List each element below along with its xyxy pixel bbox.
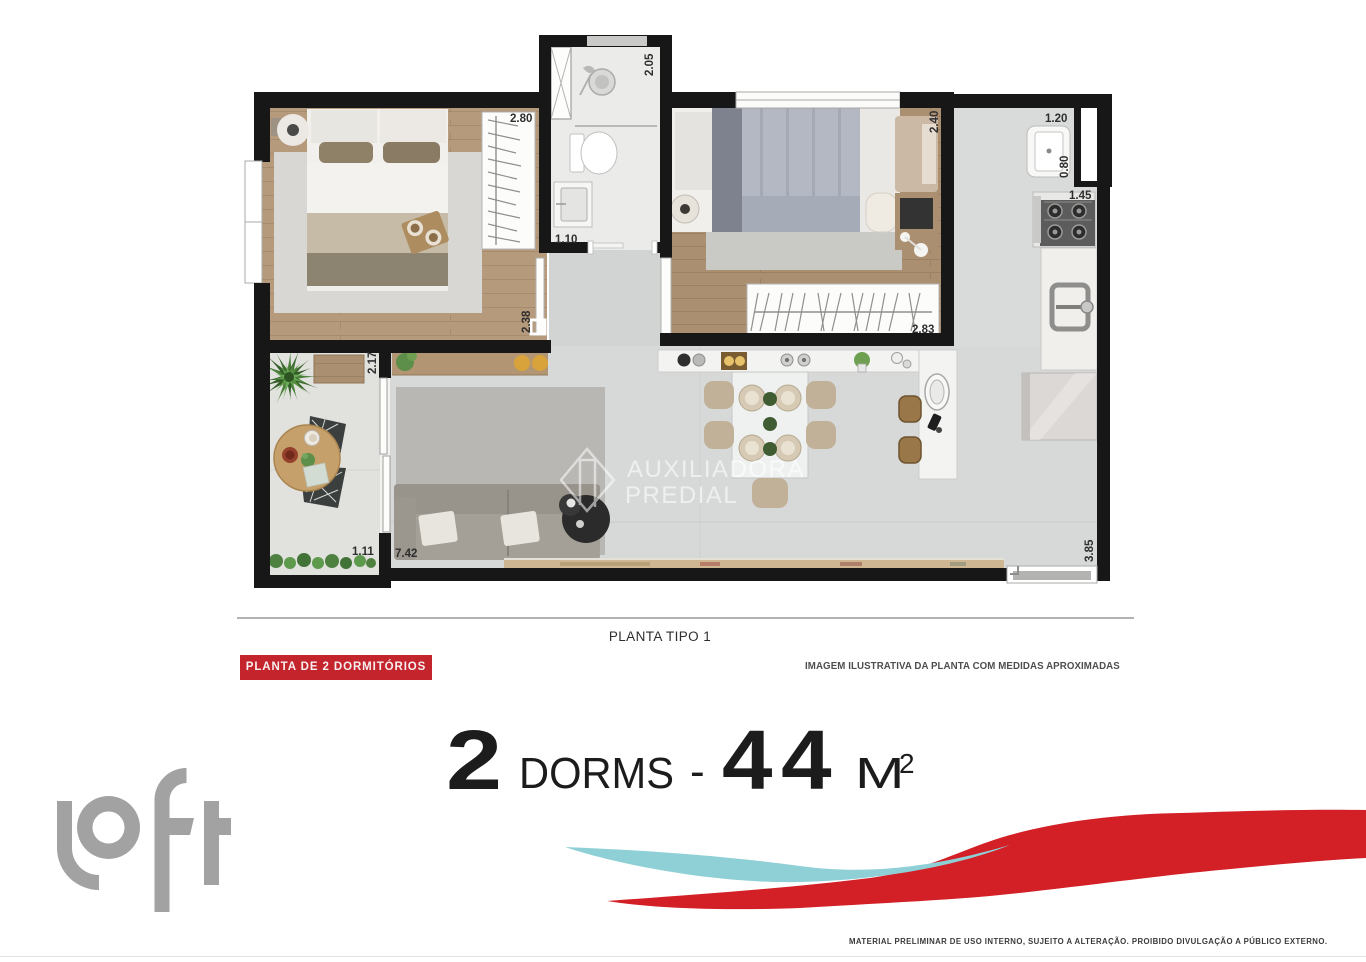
svg-text:2.40: 2.40 <box>929 111 941 133</box>
svg-text:2: 2 <box>446 713 502 807</box>
svg-text:AUXILIADORA: AUXILIADORA <box>627 456 805 483</box>
svg-text:2.05: 2.05 <box>644 53 656 76</box>
svg-text:0.80: 0.80 <box>1059 156 1071 178</box>
svg-text:-: - <box>690 747 705 796</box>
svg-text:1.10: 1.10 <box>555 234 577 246</box>
svg-text:1.11: 1.11 <box>352 546 374 558</box>
svg-text:1.45: 1.45 <box>1069 190 1092 202</box>
svg-text:3.85: 3.85 <box>1084 539 1096 562</box>
svg-text:1.20: 1.20 <box>1045 113 1067 125</box>
svg-text:PREDIAL: PREDIAL <box>625 482 738 509</box>
svg-text:2.17: 2.17 <box>367 352 379 374</box>
svg-text:2: 2 <box>899 748 915 779</box>
svg-text:2.80: 2.80 <box>510 113 532 125</box>
svg-text:2.38: 2.38 <box>521 310 533 333</box>
svg-text:7.42: 7.42 <box>395 548 417 560</box>
svg-text:2.83: 2.83 <box>912 324 934 336</box>
